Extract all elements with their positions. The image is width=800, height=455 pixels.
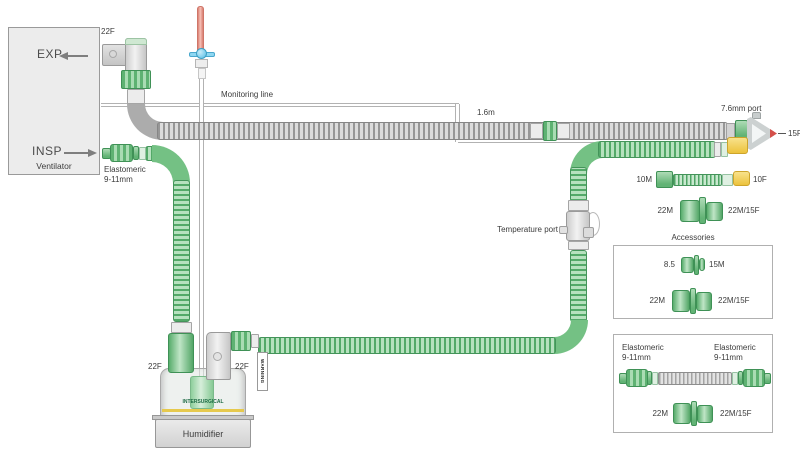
cm-left-body bbox=[626, 369, 648, 387]
adapter-10f-label: 10F bbox=[753, 175, 767, 184]
insp-label: INSP bbox=[32, 145, 62, 159]
humidifier-outlet-tube bbox=[258, 337, 556, 354]
humidifier-inlet-ring bbox=[171, 322, 192, 333]
monitoring-line-vertical bbox=[199, 60, 204, 382]
warning-tag-text: WARNING bbox=[260, 359, 265, 384]
y-piece-port-label: 7.6mm port bbox=[721, 104, 761, 113]
adapter-10m-label: 10M bbox=[628, 175, 652, 184]
insp-arrow-shaft bbox=[64, 152, 88, 154]
exp-green-collar bbox=[121, 70, 151, 89]
breathing-circuit-diagram: EXP INSP Ventilator 22F 7.6mm port 15F M… bbox=[0, 0, 800, 455]
patient-end-callout-line bbox=[778, 133, 786, 134]
inspiratory-limb-vertical-tube-upper bbox=[570, 167, 587, 202]
temp-port-cap bbox=[583, 227, 594, 238]
adapter-10m-connector bbox=[656, 171, 673, 188]
pressure-line-red-tube bbox=[197, 6, 204, 52]
adapter-22m15f-label: 22M/15F bbox=[728, 206, 760, 215]
humidifier-label: Humidifier bbox=[155, 429, 251, 439]
exp-arrow-shaft bbox=[67, 55, 88, 57]
wye-insp-yellow-connector bbox=[727, 137, 748, 154]
tube-length-label: 1.6m bbox=[477, 108, 495, 117]
monitoring-line-label: Monitoring line bbox=[221, 90, 273, 99]
humidifier-brand-label: INTERSURGICAL bbox=[160, 400, 246, 406]
acc-85-connector-body bbox=[681, 257, 694, 273]
cm-right-body bbox=[743, 369, 765, 387]
acc-22m-right bbox=[696, 292, 712, 311]
cm-22m15f-label: 22M/15F bbox=[720, 409, 752, 418]
humidifier-inlet-size-label: 22F bbox=[148, 362, 162, 371]
adapter-10-tube bbox=[673, 174, 722, 186]
luer-taper bbox=[198, 68, 206, 79]
inspiratory-limb-top-tube bbox=[598, 141, 716, 158]
exp-label: EXP bbox=[37, 48, 63, 62]
cm-corrugated-tube bbox=[658, 372, 732, 385]
cm-left-label-2: 9-11mm bbox=[622, 353, 651, 362]
acc-22m15f-label: 22M/15F bbox=[718, 296, 750, 305]
patient-end-label: 15F bbox=[788, 129, 800, 138]
acc-85-label: 8.5 bbox=[655, 260, 675, 269]
adapter-22m-left bbox=[680, 200, 700, 222]
insp-elastomeric-label-2: 9-11mm bbox=[104, 175, 133, 184]
insp-elastomeric-label-1: Elastomeric bbox=[104, 165, 146, 174]
acc-22m-left bbox=[672, 290, 690, 312]
exp-elbow-cap bbox=[125, 38, 147, 45]
inspiratory-limb-ring bbox=[714, 142, 721, 157]
cm-22m-label: 22M bbox=[643, 409, 668, 418]
inspiratory-limb-bottom-bend bbox=[554, 320, 588, 354]
temp-port-lower-ring bbox=[568, 241, 589, 250]
exp-white-connector bbox=[127, 89, 145, 104]
temp-port-upper-ring bbox=[568, 200, 589, 211]
adapter-10f-ring bbox=[722, 174, 733, 186]
expiratory-tube-joint-ring-2 bbox=[557, 123, 570, 139]
temperature-port-label: Temperature port bbox=[425, 225, 558, 234]
cm-left-ring bbox=[652, 372, 658, 385]
expiratory-tube bbox=[157, 122, 728, 140]
expiratory-tube-joint-green bbox=[543, 121, 557, 141]
warning-tag: WARNING bbox=[257, 352, 268, 391]
insp-elastomeric-body bbox=[110, 144, 133, 162]
outlet-elbow-green-collar bbox=[231, 331, 251, 351]
cm-22m-right bbox=[697, 405, 713, 423]
outlet-elbow-circle bbox=[213, 352, 222, 361]
adapter-22m-label: 22M bbox=[648, 206, 673, 215]
acc-22m-label: 22M bbox=[640, 296, 665, 305]
humidifier-water-level-line bbox=[162, 409, 244, 412]
insp-connector-ring bbox=[139, 147, 146, 160]
ventilator-label: Ventilator bbox=[8, 162, 100, 172]
insp-arrow-icon bbox=[88, 149, 97, 157]
exp-port-size-label: 22F bbox=[101, 27, 115, 36]
humidifier-inlet-port-connector bbox=[168, 333, 194, 373]
humidifier-outlet-size-label: 22F bbox=[235, 362, 249, 371]
humidifier-inlet-tube bbox=[173, 180, 190, 322]
temperature-port-nub bbox=[559, 226, 568, 234]
adapter-10f-connector bbox=[733, 171, 750, 186]
outlet-elbow-white-ring bbox=[251, 334, 259, 348]
cm-right-label-2: 9-11mm bbox=[714, 353, 743, 362]
adapter-22m-ring bbox=[699, 197, 706, 224]
cm-22m-left bbox=[673, 403, 691, 424]
y-piece-patient-tip bbox=[770, 129, 777, 138]
expiratory-tube-joint-ring-1 bbox=[530, 123, 543, 139]
adapter-22m-right bbox=[706, 202, 723, 221]
cm-right-tip bbox=[764, 373, 771, 384]
cm-right-label-1: Elastomeric bbox=[714, 343, 756, 352]
cm-left-label-1: Elastomeric bbox=[622, 343, 664, 352]
exp-elbow-port-circle bbox=[109, 50, 117, 58]
inspiratory-limb-vertical-tube-lower bbox=[570, 250, 587, 322]
accessories-title: Accessories bbox=[660, 233, 726, 242]
acc-85-connector-tip bbox=[699, 258, 705, 271]
stopcock-valve-icon bbox=[196, 48, 207, 59]
insp-tube-bend bbox=[152, 145, 190, 183]
acc-15m-label: 15M bbox=[709, 260, 725, 269]
luer-body bbox=[195, 59, 208, 68]
